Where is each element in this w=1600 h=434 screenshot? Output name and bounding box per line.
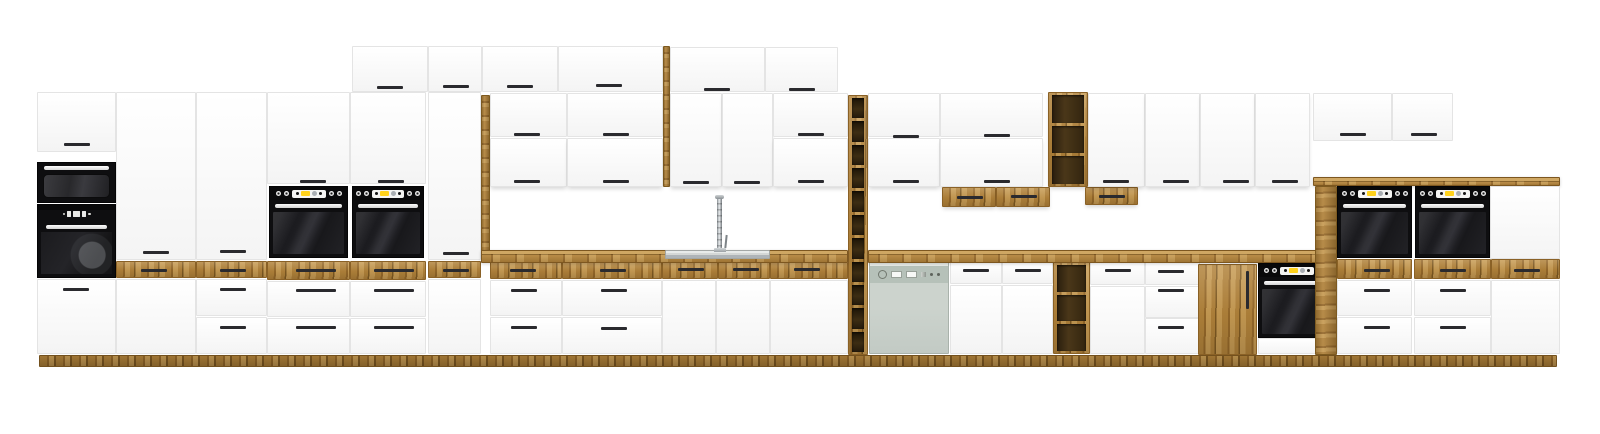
oven-knob (415, 191, 420, 196)
cabinet-door (1145, 93, 1200, 187)
cabinet-handle (603, 133, 629, 136)
oak-side-panel (663, 46, 670, 187)
oak-drawer-front (428, 261, 481, 278)
cabinet-door (490, 93, 567, 137)
drawer-front (1090, 262, 1145, 285)
oven-knob (1473, 191, 1478, 196)
dishwasher-button (878, 270, 887, 279)
shelf-slot (852, 308, 864, 328)
cabinet-handle (220, 269, 246, 272)
oven-door-glass (41, 232, 112, 274)
cabinet-handle (514, 133, 540, 136)
hanging-oak-drawer (996, 187, 1050, 207)
shelf-slot (852, 168, 864, 188)
oven-door-glass (356, 212, 420, 254)
drawer-front (196, 279, 267, 316)
cabinet-handle (220, 326, 246, 329)
pantry-door (428, 92, 481, 260)
cabinet-handle (789, 88, 815, 91)
shelf-slot (1052, 95, 1084, 123)
oak-drawer-front (770, 262, 848, 279)
cabinet-door (722, 93, 773, 187)
cabinet-handle (678, 268, 704, 271)
countertop-right (868, 250, 1320, 263)
oven-handle-bar (1343, 204, 1406, 208)
cabinet-handle (1514, 269, 1540, 272)
dishwasher-controls (870, 267, 948, 281)
cabinet-handle (984, 180, 1010, 183)
top-wall-door (428, 46, 482, 92)
cabinet-handle (984, 134, 1010, 137)
oven-display (46, 209, 107, 219)
cabinet-door (940, 93, 1043, 137)
plinth (39, 355, 1557, 367)
cabinet-handle (511, 289, 537, 292)
oak-drawer-front (1491, 259, 1560, 279)
cabinet-handle (893, 180, 919, 183)
top-wall-door (482, 46, 558, 92)
drawer-front (1145, 318, 1200, 354)
shelf-slot (1057, 265, 1086, 292)
oven-door-glass (273, 212, 344, 254)
raised-counter-ledge (1313, 177, 1560, 186)
oven-tower-door (267, 92, 350, 184)
drawer-front (490, 280, 562, 316)
cabinet-handle (704, 88, 730, 91)
oven-handle-bar (1421, 204, 1484, 208)
oven-knob (1272, 268, 1277, 273)
drawer-front (350, 318, 426, 354)
oak-side-panel (481, 95, 490, 258)
shelf-slot (852, 332, 864, 352)
shelf-slot (852, 262, 864, 282)
cabinet-handle (1246, 271, 1249, 309)
cabinet-handle (1158, 270, 1184, 273)
cabinet-handle (1163, 180, 1189, 183)
oven-knob (1350, 191, 1355, 196)
top-wall-door (670, 47, 765, 92)
microwave-handle-bar (44, 166, 109, 170)
microwave (37, 162, 116, 203)
cabinet-handle (374, 289, 414, 292)
built-in-oven (1337, 186, 1412, 258)
drawer-front (1414, 280, 1491, 316)
oak-drawer-front (718, 262, 770, 279)
shelf-slot (852, 285, 864, 305)
microwave-window (43, 174, 110, 198)
top-wall-door (352, 46, 428, 92)
cabinet-door (490, 138, 567, 187)
cabinet-handle (596, 84, 622, 87)
cabinet-handle (220, 250, 246, 253)
oak-side-panel (1315, 186, 1337, 355)
built-in-oven (352, 186, 424, 258)
cabinet-handle (143, 251, 169, 254)
cabinet-handle (794, 268, 820, 271)
cabinet-handle (1440, 326, 1466, 329)
cabinet-handle (443, 269, 469, 272)
oven-handle-bar (358, 204, 418, 208)
cabinet-door (940, 138, 1043, 187)
cabinet-handle (1223, 180, 1249, 183)
drawer-front (1145, 286, 1200, 318)
drawer-front (1337, 317, 1412, 354)
top-wall-door (558, 46, 663, 92)
drawer-front (562, 317, 662, 354)
cabinet-handle (1364, 326, 1390, 329)
cabinet-handle (507, 85, 533, 88)
cabinet-handle (1011, 195, 1037, 198)
oak-drawer-front (116, 261, 196, 278)
cabinet-handle (296, 269, 336, 272)
oven-control-panel (353, 187, 423, 200)
cabinet-handle (1411, 133, 1437, 136)
cabinet-door (1255, 93, 1310, 187)
hanging-oak-drawer (1085, 187, 1138, 205)
open-shelf-base (1053, 262, 1090, 354)
drawer-front (1414, 317, 1491, 354)
oven-knob (1395, 191, 1400, 196)
shelf-slot (1057, 324, 1086, 351)
cabinet-handle (374, 326, 414, 329)
cabinet-door (567, 138, 663, 187)
pantry-door (116, 92, 196, 260)
drawer-front (196, 317, 267, 354)
cabinet-door (1200, 93, 1255, 187)
cabinet-handle (601, 327, 627, 330)
shelf-slot (852, 215, 864, 235)
cabinet-handle (1340, 133, 1366, 136)
wine-rack-column (848, 95, 868, 355)
cabinet-door (1090, 286, 1145, 354)
cabinet-handle (1440, 289, 1466, 292)
cabinet-handle (733, 268, 759, 271)
oven-knob (337, 191, 342, 196)
drawer-front (267, 281, 350, 317)
oven-knob (1420, 191, 1425, 196)
drawer-front (1002, 262, 1053, 284)
dishwasher (869, 262, 949, 354)
cabinet-door (868, 138, 940, 187)
oven-display (1280, 267, 1314, 275)
cabinet-handle (378, 180, 404, 183)
oven-knob (1342, 191, 1347, 196)
cabinet-handle (1015, 269, 1041, 272)
oven-knob (1403, 191, 1408, 196)
top-wall-door (1313, 93, 1392, 141)
drawer-front (950, 262, 1002, 284)
pantry-door (196, 92, 267, 260)
oven-door-glass (1419, 212, 1486, 254)
shelf-slot (1052, 156, 1084, 184)
cabinet-handle (601, 289, 627, 292)
cabinet-handle (296, 289, 336, 292)
cabinet-door (868, 93, 940, 137)
oven-door-glass (1341, 212, 1408, 254)
oven-knob (364, 191, 369, 196)
drawer-front (490, 317, 562, 354)
shelf-slot (852, 238, 864, 258)
oven-display (1436, 190, 1470, 198)
cabinet-handle (603, 180, 629, 183)
cabinet-handle (64, 143, 90, 146)
drawer-front (562, 280, 662, 316)
cabinet-handle (1103, 180, 1129, 183)
cabinet-handle (798, 180, 824, 183)
cabinet-handle (296, 326, 336, 329)
cabinet-handle (1272, 180, 1298, 183)
shelf-slot (852, 121, 864, 141)
cabinet-door (1490, 186, 1560, 259)
built-in-oven (1415, 186, 1490, 258)
cabinet-handle (511, 326, 537, 329)
oven-knob (276, 191, 281, 196)
cabinet-handle (963, 269, 989, 272)
oven-knob (407, 191, 412, 196)
top-wall-door (1392, 93, 1453, 141)
cabinet-handle (300, 180, 326, 183)
cabinet-door (670, 93, 722, 187)
cabinet-handle (1440, 269, 1466, 272)
shelf-slot (1052, 126, 1084, 154)
combi-oven (37, 204, 116, 278)
cabinet-handle (510, 269, 536, 272)
cabinet-handle (63, 288, 89, 291)
cabinet-handle (377, 86, 403, 89)
oven-control-panel (270, 187, 347, 200)
oven-tower-door (350, 92, 426, 184)
cabinet-handle (443, 85, 469, 88)
cabinet-door (950, 285, 1002, 354)
cabinet-handle (220, 288, 246, 291)
tall-cabinet-top-door (37, 92, 116, 152)
cabinet-door (37, 279, 116, 354)
cabinet-handle (1105, 269, 1131, 272)
oak-drawer-front (350, 261, 426, 280)
faucet-spout (715, 195, 724, 199)
oven-knob (1481, 191, 1486, 196)
shelf-slot (1057, 295, 1086, 322)
built-in-oven (269, 186, 348, 258)
oven-knob (284, 191, 289, 196)
cabinet-handle (141, 269, 167, 272)
drawer-front (267, 318, 350, 354)
oven-control-panel (1338, 187, 1411, 200)
oak-drawer-front (490, 262, 562, 279)
cabinet-handle (514, 180, 540, 183)
cabinet-door (770, 280, 848, 354)
drawer-front (350, 281, 426, 317)
oak-drawer-front (1337, 259, 1412, 279)
sink-base-door (716, 280, 770, 354)
oven-display (372, 190, 405, 198)
oven-knob (1264, 268, 1269, 273)
cabinet-handle (1364, 289, 1390, 292)
cabinet-door (116, 279, 196, 354)
cabinet-door (1002, 285, 1053, 354)
cabinet-handle (1364, 269, 1390, 272)
cabinet-handle (1099, 195, 1125, 198)
cabinet-handle (1158, 326, 1184, 329)
oven-knob (1428, 191, 1433, 196)
cabinet-handle (600, 269, 626, 272)
faucet (713, 195, 728, 252)
oak-drawer-front (267, 261, 350, 280)
open-shelf-wall (1048, 92, 1088, 187)
cabinet-door (773, 93, 848, 137)
cabinet-door (773, 138, 848, 187)
oak-drawer-front (662, 262, 718, 279)
cabinet-handle (734, 181, 760, 184)
oven-display (292, 190, 326, 198)
faucet-lever (724, 235, 727, 248)
cabinet-handle (957, 196, 983, 199)
oak-base-door (1198, 264, 1257, 355)
hanging-oak-drawer (942, 187, 996, 207)
drawer-front (1145, 262, 1200, 285)
shelf-slot (852, 98, 864, 118)
cabinet-door (428, 279, 481, 354)
drawer-front (1337, 280, 1412, 316)
oven-control-panel (1416, 187, 1489, 200)
shelf-slot (852, 191, 864, 211)
cabinet-handle (1158, 289, 1184, 292)
cabinet-handle (683, 181, 709, 184)
cabinet-handle (798, 133, 824, 136)
oven-handle-bar (46, 225, 107, 229)
oven-handle-bar (275, 204, 342, 208)
oak-drawer-front (1414, 259, 1491, 279)
oak-drawer-front (562, 262, 662, 279)
top-wall-door (765, 47, 838, 92)
cabinet-handle (443, 252, 469, 255)
shelf-slot (852, 145, 864, 165)
faucet-pipe (717, 197, 722, 249)
faucet-base (714, 248, 726, 252)
oven-knob (329, 191, 334, 196)
sink-base-door (662, 280, 716, 354)
kitchen-product-render (0, 0, 1600, 434)
cabinet-handle (374, 269, 414, 272)
oak-drawer-front (196, 261, 267, 278)
oven-knob (356, 191, 361, 196)
cabinet-door (567, 93, 663, 137)
cabinet-door (1088, 93, 1145, 187)
oven-display (1358, 190, 1392, 198)
cabinet-door (1491, 280, 1560, 354)
